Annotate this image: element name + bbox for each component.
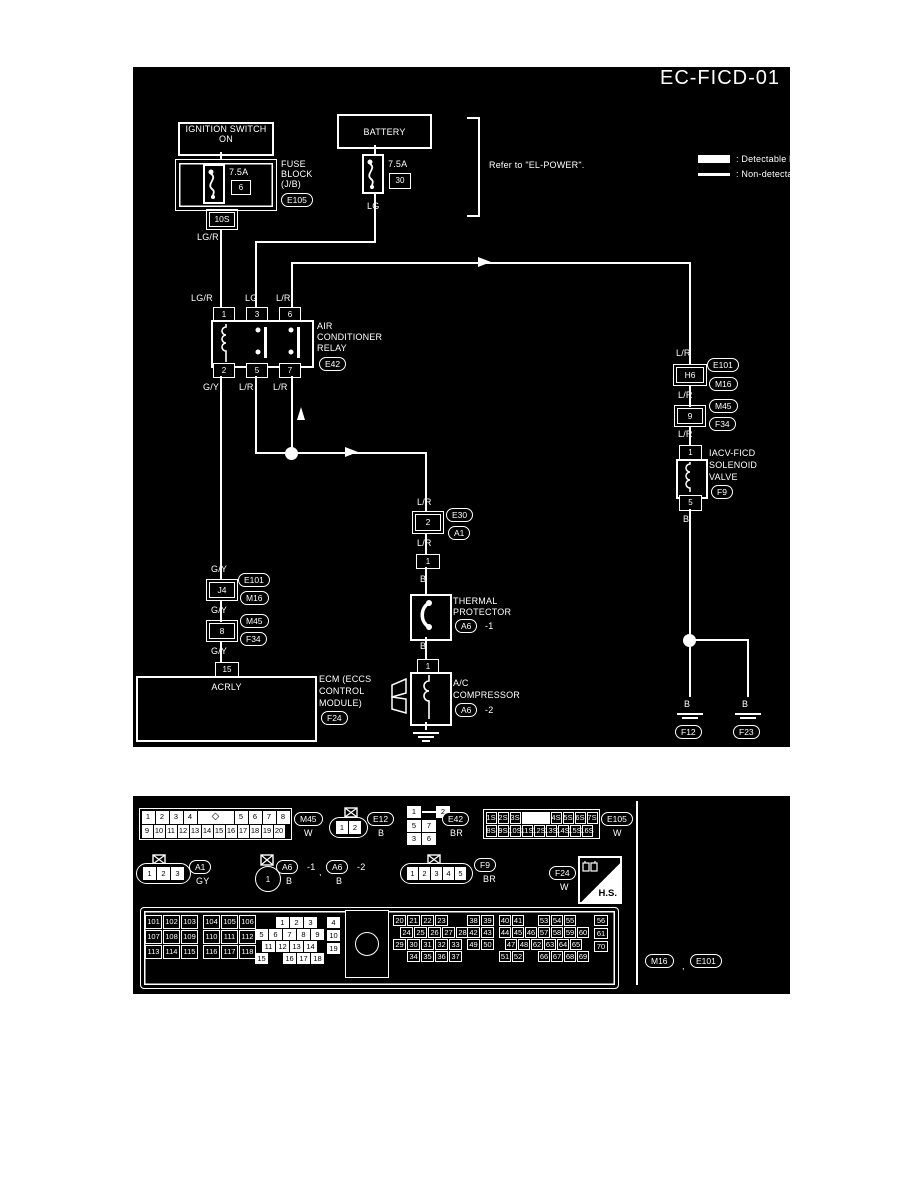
pin-cell: 12 bbox=[178, 825, 189, 838]
pin-cell: 101 bbox=[145, 915, 162, 929]
connector-label-f23: F23 bbox=[733, 725, 760, 739]
pin-cell: 110 bbox=[203, 930, 220, 944]
legend-nondetectable-label: : Non-detectable line for DTC bbox=[736, 169, 790, 179]
fuse-block-box bbox=[175, 159, 277, 211]
connector-suffix: -2 bbox=[485, 705, 493, 715]
relay-name3: RELAY bbox=[317, 343, 347, 353]
pin-cell: 104 bbox=[203, 915, 220, 929]
solenoid-coil-icon bbox=[678, 461, 702, 493]
connector-label-m45: M45 bbox=[294, 812, 323, 826]
pin-cell: 59 bbox=[564, 927, 576, 938]
pin-cell: 8 bbox=[277, 811, 290, 824]
wire-label-lr: L/R bbox=[678, 429, 693, 439]
wire bbox=[291, 262, 691, 264]
splice-j4: J4 bbox=[209, 582, 235, 598]
compressor-coil-icon bbox=[412, 674, 446, 720]
pin-cell: 3 bbox=[407, 833, 421, 845]
pin-cell: 18 bbox=[250, 825, 261, 838]
connector-label-a6: A6 bbox=[455, 619, 477, 633]
pin-cell: 19 bbox=[327, 943, 340, 954]
pin-row: 123 bbox=[276, 917, 324, 928]
pin-cell: 50 bbox=[481, 939, 494, 950]
wire bbox=[255, 241, 376, 243]
wire bbox=[291, 262, 293, 307]
pin-cell: 6 bbox=[269, 929, 282, 940]
connector-e12-pins: 12 bbox=[329, 817, 368, 838]
connector-label-e30: E30 bbox=[446, 508, 473, 522]
pin-cell: 107 bbox=[145, 930, 162, 944]
fuse-rating: 7.5A bbox=[229, 167, 248, 177]
pin-cell: 2 bbox=[349, 821, 361, 834]
pin-cell: 4 bbox=[184, 811, 197, 824]
battery-fuse-rating: 7.5A bbox=[388, 159, 407, 169]
ecm-block-2: 104105106110111112116117118 bbox=[203, 915, 256, 959]
connector-e42-pins: 57 36 bbox=[407, 820, 436, 845]
pin-cell: 6 bbox=[422, 833, 436, 845]
pin-cell: 5 bbox=[455, 867, 466, 880]
pin-cell: 46 bbox=[525, 927, 537, 938]
connector-label-e101: E101 bbox=[238, 573, 270, 587]
wire-label-lr: L/R bbox=[417, 538, 432, 548]
hs-label: H.S. bbox=[599, 888, 617, 899]
compressor-name1: A/C bbox=[453, 678, 469, 688]
comma: , bbox=[319, 867, 322, 877]
pin-cell: 51 bbox=[499, 951, 511, 962]
bolt-hole-icon bbox=[355, 932, 379, 956]
relay-internals-icon bbox=[214, 323, 309, 363]
connector-label-f34: F34 bbox=[709, 417, 736, 431]
ecm-block-3-side: 41019 bbox=[327, 917, 340, 954]
fuse-block-name3: (J/B) bbox=[281, 179, 301, 189]
pin-cell: 15S bbox=[570, 825, 581, 837]
ecm-block-5: 383942434950 bbox=[467, 915, 494, 950]
ecm-signal-name: ACRLY bbox=[138, 682, 315, 692]
pin-cell: 49 bbox=[467, 939, 480, 950]
keying-notch-icon bbox=[260, 854, 274, 866]
ecm-block-1: 101102103107108109113114115 bbox=[145, 915, 198, 959]
pin-row: 4950 bbox=[467, 939, 494, 950]
connector-label-e101: E101 bbox=[690, 954, 722, 968]
wire-label-b: B bbox=[420, 574, 426, 584]
pin-cell: 12S bbox=[534, 825, 545, 837]
pin-row: 110111112 bbox=[203, 930, 256, 944]
pin-cell: 3S bbox=[510, 812, 521, 824]
connector-label-e42: E42 bbox=[442, 812, 469, 826]
wire bbox=[291, 452, 427, 454]
valve-name2: SOLENOID bbox=[709, 460, 757, 470]
pin-cell: 55 bbox=[564, 915, 576, 926]
pin-row: 101102103 bbox=[145, 915, 198, 929]
connector-label-a6: A6 bbox=[276, 860, 298, 874]
pin-cell: 1 bbox=[336, 821, 348, 834]
pin-cell: 34 bbox=[407, 951, 420, 962]
pin-cell: 48 bbox=[518, 939, 530, 950]
hs-tool-icon bbox=[582, 860, 598, 874]
pin-cell: 42 bbox=[467, 927, 480, 938]
pin-cell: 16S bbox=[582, 825, 593, 837]
wire-label-lgr: LG/R bbox=[197, 232, 219, 242]
pin-row: 20212223 bbox=[393, 915, 469, 926]
ignition-switch-line1: IGNITION SWITCH bbox=[180, 124, 272, 134]
pin-cell: 52 bbox=[512, 951, 524, 962]
ecm-name1: ECM (ECCS bbox=[319, 674, 371, 684]
pin-cell: 30 bbox=[407, 939, 420, 950]
pin-cell: 2 bbox=[157, 867, 170, 880]
pin-cell: 20 bbox=[274, 825, 285, 838]
battery-label: BATTERY bbox=[363, 127, 405, 137]
pin-cell: 7 bbox=[283, 929, 296, 940]
ground-icon bbox=[677, 711, 703, 719]
ecm-block-7: 566170 bbox=[594, 915, 608, 952]
pin-row: 15161718 bbox=[255, 953, 324, 964]
pin-cell: 3 bbox=[170, 811, 183, 824]
valve-name3: VALVE bbox=[709, 472, 738, 482]
connector-label-m45: M45 bbox=[709, 399, 738, 413]
pin-cell: 11 bbox=[166, 825, 177, 838]
pin-row: 4041535455 bbox=[499, 915, 589, 926]
wire-label-gy: G/Y bbox=[203, 382, 219, 392]
ecm-block-6: 4041535455444546575859604748626364655152… bbox=[499, 915, 589, 962]
pin-cell: 13 bbox=[290, 941, 303, 952]
relay-name1: AIR bbox=[317, 321, 333, 331]
pin-cell: 36 bbox=[435, 951, 448, 962]
connector-label-a1: A1 bbox=[189, 860, 211, 874]
connector-keyway-bar bbox=[422, 811, 436, 813]
wire-label-lr: L/R bbox=[273, 382, 288, 392]
pin-cell: 32 bbox=[435, 939, 448, 950]
pin-cell: 106 bbox=[239, 915, 256, 929]
ecm-name3: MODULE) bbox=[319, 698, 362, 708]
pin-row: 1234◇5678 bbox=[142, 811, 290, 824]
pin-cell: 105 bbox=[221, 915, 238, 929]
pin-cell: 10S bbox=[510, 825, 521, 837]
legend-detectable-label: : Detectable line for DTC bbox=[736, 154, 790, 164]
pin-cell: 12 bbox=[276, 941, 289, 952]
pin-cell: 103 bbox=[181, 915, 198, 929]
pin-cell: 70 bbox=[594, 941, 608, 952]
pin-cell: 5 bbox=[407, 820, 421, 832]
hs-badge: H.S. bbox=[578, 856, 622, 904]
pin-row: 2930313233 bbox=[393, 939, 469, 950]
connector-label-f12: F12 bbox=[675, 725, 702, 739]
pin-cell: 38 bbox=[467, 915, 480, 926]
pin-row: 8S9S10S11S12S13S14S15S16S bbox=[486, 825, 598, 837]
connector-label-f34: F34 bbox=[240, 632, 267, 646]
wiring-diagram-panel: EC-FICD-01 : Detectable line for DTC : N… bbox=[133, 65, 790, 747]
pin-cell: 45 bbox=[512, 927, 524, 938]
pin-cell: 1 bbox=[407, 867, 418, 880]
pin-cell: 2 bbox=[290, 917, 303, 928]
wire-label-lr: L/R bbox=[417, 497, 432, 507]
pin-cell: 40 bbox=[499, 915, 511, 926]
pin-cell: 39 bbox=[481, 915, 494, 926]
wire bbox=[689, 645, 691, 697]
pin-cell: 27 bbox=[442, 927, 455, 938]
pin-cell: 22 bbox=[421, 915, 434, 926]
connector-label-e12: E12 bbox=[367, 812, 394, 826]
fuse-block-name1: FUSE bbox=[281, 159, 306, 169]
wire bbox=[220, 376, 222, 580]
pin-cell: 14 bbox=[202, 825, 213, 838]
splice-9: 9 bbox=[677, 408, 703, 424]
pin-cell: 5 bbox=[255, 929, 268, 940]
ground-icon bbox=[413, 730, 439, 742]
fuse-number: 6 bbox=[231, 180, 251, 195]
connector-color: GY bbox=[196, 876, 209, 886]
panel-divider bbox=[636, 801, 638, 985]
pin-row: 4243 bbox=[467, 927, 494, 938]
battery-box: BATTERY bbox=[337, 114, 432, 149]
wire-label-b: B bbox=[420, 641, 426, 651]
connector-label-m16: M16 bbox=[645, 954, 674, 968]
battery-fuse-number: 30 bbox=[389, 173, 411, 189]
fuse-icon bbox=[362, 154, 384, 194]
pin-cell: 118 bbox=[239, 945, 256, 959]
pin-cell: 109 bbox=[181, 930, 198, 944]
splice-h6: H6 bbox=[676, 367, 704, 383]
pin-cell: 11 bbox=[262, 941, 275, 952]
comma: , bbox=[682, 961, 685, 971]
pin-cell: 26 bbox=[428, 927, 441, 938]
pin-gap bbox=[522, 812, 550, 824]
compressor-box bbox=[410, 672, 452, 726]
pin-cell: 2S bbox=[498, 812, 509, 824]
connector-label-e105: E105 bbox=[281, 193, 313, 207]
pin-cell: 15 bbox=[255, 953, 268, 964]
pin-cell: 112 bbox=[239, 930, 256, 944]
valve-name1: IACV-FICD bbox=[709, 448, 755, 458]
pin-cell: 3 bbox=[171, 867, 184, 880]
pin-cell: 18 bbox=[311, 953, 324, 964]
wire bbox=[291, 376, 293, 454]
ground-icon bbox=[735, 711, 761, 719]
pin-row: 3839 bbox=[467, 915, 494, 926]
pin-cell: 58 bbox=[551, 927, 563, 938]
wire-label-lr: L/R bbox=[676, 348, 691, 358]
wire-label-lgr: LG/R bbox=[191, 293, 213, 303]
pin-cell: 37 bbox=[449, 951, 462, 962]
pin-cell: 9 bbox=[311, 929, 324, 940]
pin-cell: 41 bbox=[512, 915, 524, 926]
pin-row: 515266676869 bbox=[499, 951, 589, 962]
pin-cell: 21 bbox=[407, 915, 420, 926]
pin-row: 1S2S3S4S5S6S7S bbox=[486, 812, 598, 824]
splice-8: 8 bbox=[209, 623, 235, 639]
pin-cell: 54 bbox=[551, 915, 563, 926]
pin-cell: 14S bbox=[558, 825, 569, 837]
bracket bbox=[478, 117, 480, 217]
pin-cell: 7 bbox=[422, 820, 436, 832]
connector-color: W bbox=[613, 828, 622, 838]
pin-row: 57 bbox=[407, 820, 436, 832]
connector-color: W bbox=[304, 828, 313, 838]
connector-label-a6: A6 bbox=[326, 860, 348, 874]
pin-cell: 1 bbox=[407, 806, 421, 818]
pin-cell: 116 bbox=[203, 945, 220, 959]
pin-cell: 113 bbox=[145, 945, 162, 959]
clutch-icon bbox=[390, 677, 408, 717]
connector-label-f9: F9 bbox=[711, 485, 733, 499]
pin-cell: 35 bbox=[421, 951, 434, 962]
wire-label-lr: L/R bbox=[678, 390, 693, 400]
pin-cell: 7 bbox=[263, 811, 276, 824]
pin-cell: 1 bbox=[276, 917, 289, 928]
connector-color: B bbox=[336, 876, 342, 886]
thermal-protector-name2: PROTECTOR bbox=[453, 607, 511, 617]
connector-m45-pins: 1234◇5678 91011121314151617181920 bbox=[139, 808, 292, 840]
pin-cell: 4S bbox=[551, 812, 562, 824]
pin-cell: 67 bbox=[551, 951, 563, 962]
legend-nondetectable-line-sample bbox=[698, 173, 730, 176]
connector-suffix: -1 bbox=[485, 621, 493, 631]
pin-cell: 60 bbox=[577, 927, 589, 938]
thermal-protector-pin: 1 bbox=[416, 554, 440, 569]
connector-label-f24: F24 bbox=[549, 866, 576, 880]
flow-arrow-icon bbox=[297, 407, 305, 420]
pin-cell: 10 bbox=[154, 825, 165, 838]
pin-cell: 57 bbox=[538, 927, 550, 938]
pin-cell: 13 bbox=[190, 825, 201, 838]
wire-label-gy: G/Y bbox=[211, 605, 227, 615]
pin-cell: 31 bbox=[421, 939, 434, 950]
pin-cell: 15 bbox=[214, 825, 225, 838]
pin-cell: 44 bbox=[499, 927, 511, 938]
pin-row: 34353637 bbox=[407, 951, 469, 962]
thermal-switch-icon bbox=[412, 596, 446, 635]
wire-label-lr: L/R bbox=[239, 382, 254, 392]
bracket bbox=[467, 117, 479, 119]
pin-cell: 5 bbox=[235, 811, 248, 824]
connector-label-a6: A6 bbox=[455, 703, 477, 717]
pin-row: 2425262728 bbox=[400, 927, 469, 938]
pin-cell: 13S bbox=[546, 825, 557, 837]
connector-label-m16: M16 bbox=[240, 591, 269, 605]
pin-cell: 56 bbox=[594, 915, 608, 926]
wire-label-gy: G/Y bbox=[211, 564, 227, 574]
iacv-ficd-valve-box bbox=[676, 459, 708, 499]
connector-a1-pins: 123 bbox=[136, 863, 191, 884]
wire-label-b: B bbox=[742, 699, 748, 709]
wire bbox=[747, 639, 749, 697]
wire-label-b: B bbox=[684, 699, 690, 709]
pin-cell: 16 bbox=[283, 953, 296, 964]
pin-cell: 63 bbox=[544, 939, 556, 950]
pin-cell: 69 bbox=[577, 951, 589, 962]
pin-cell: 8 bbox=[297, 929, 310, 940]
refer-note: Refer to "EL-POWER". bbox=[489, 160, 584, 170]
connector-views-panel: 1234◇5678 91011121314151617181920 M45 W … bbox=[133, 796, 790, 994]
pin-cell: 47 bbox=[505, 939, 517, 950]
pin-cell: 5S bbox=[563, 812, 574, 824]
pin-cell: 4 bbox=[327, 917, 340, 928]
ecm-name2: CONTROL bbox=[319, 686, 364, 696]
pin-row: 104105106 bbox=[203, 915, 256, 929]
relay-box bbox=[211, 320, 314, 368]
pin-cell: 24 bbox=[400, 927, 413, 938]
ignition-switch-line2: ON bbox=[180, 134, 272, 144]
connector-label-f9: F9 bbox=[474, 858, 496, 872]
wire-label-b: B bbox=[683, 514, 689, 524]
connector-label-m45: M45 bbox=[240, 614, 269, 628]
pin-cell: 2 bbox=[419, 867, 430, 880]
pin-cell: 6 bbox=[249, 811, 262, 824]
ecm-box: ACRLY bbox=[136, 676, 317, 742]
connector-color: BR bbox=[450, 828, 463, 838]
pin-row: 36 bbox=[407, 833, 436, 845]
wire bbox=[689, 639, 749, 641]
wire bbox=[425, 722, 427, 730]
connector-color: B bbox=[286, 876, 292, 886]
pin-cell: 53 bbox=[538, 915, 550, 926]
pin-cell: 6S bbox=[575, 812, 586, 824]
relay-pin-7: 7 bbox=[279, 363, 301, 378]
pin-row: 116117118 bbox=[203, 945, 256, 959]
connector-label-m16: M16 bbox=[709, 377, 738, 391]
pin-cell: 3 bbox=[431, 867, 442, 880]
wire bbox=[374, 194, 376, 243]
connector-e105-pins: 1S2S3S4S5S6S7S 8S9S10S11S12S13S14S15S16S bbox=[483, 809, 600, 839]
pin-cell: 11S bbox=[522, 825, 533, 837]
pin-cell: 43 bbox=[481, 927, 494, 938]
pin-cell: 108 bbox=[163, 930, 180, 944]
wire bbox=[220, 229, 222, 307]
compressor-name2: COMPRESSOR bbox=[453, 690, 520, 700]
pin-cell: 102 bbox=[163, 915, 180, 929]
pin-row: 474862636465 bbox=[505, 939, 589, 950]
bracket bbox=[467, 215, 479, 217]
pin-cell: 8S bbox=[486, 825, 497, 837]
connector-label-a1: A1 bbox=[448, 526, 470, 540]
pin-cell: 1S bbox=[486, 812, 497, 824]
pin-cell: 23 bbox=[435, 915, 448, 926]
wire-label-gy: G/Y bbox=[211, 646, 227, 656]
pin-cell: 9 bbox=[142, 825, 153, 838]
pin-cell: 64 bbox=[557, 939, 569, 950]
connector-label-e42: E42 bbox=[319, 357, 346, 371]
thermal-protector-name1: THERMAL bbox=[453, 596, 497, 606]
pin-cell: 2 bbox=[156, 811, 169, 824]
flow-arrow-icon bbox=[478, 257, 491, 267]
ecm-bolt-block bbox=[345, 910, 389, 978]
pin-row: 91011121314151617181920 bbox=[142, 825, 290, 838]
pin-cell: 4 bbox=[443, 867, 454, 880]
pin-cell: 1 bbox=[142, 811, 155, 824]
pin-cell: 16 bbox=[226, 825, 237, 838]
pin-cell: 14 bbox=[304, 941, 317, 952]
keying-diamond: ◇ bbox=[198, 811, 234, 824]
ignition-switch-box: IGNITION SWITCH ON bbox=[178, 122, 274, 156]
connector-color: W bbox=[560, 882, 569, 892]
pin-cell: 7S bbox=[587, 812, 598, 824]
wire-label-lr: L/R bbox=[276, 293, 291, 303]
fuse-block-name2: BLOCK bbox=[281, 169, 313, 179]
pin-cell: 114 bbox=[163, 945, 180, 959]
connector-color: BR bbox=[483, 874, 496, 884]
connector-label-f24: F24 bbox=[321, 711, 348, 725]
ecm-block-4: 202122232425262728293031323334353637 bbox=[393, 915, 469, 962]
pin-cell: 62 bbox=[531, 939, 543, 950]
pin-cell: 61 bbox=[594, 928, 608, 939]
pin-cell: 17 bbox=[297, 953, 310, 964]
pin-cell: 9S bbox=[498, 825, 509, 837]
wire bbox=[374, 145, 376, 154]
pin-row: 107108109 bbox=[145, 930, 198, 944]
relay-name2: CONDITIONER bbox=[317, 332, 382, 342]
page-title: EC-FICD-01 bbox=[660, 73, 780, 83]
pin-cell: 19 bbox=[262, 825, 273, 838]
thermal-protector-box bbox=[410, 594, 452, 641]
pin-cell: 66 bbox=[538, 951, 550, 962]
